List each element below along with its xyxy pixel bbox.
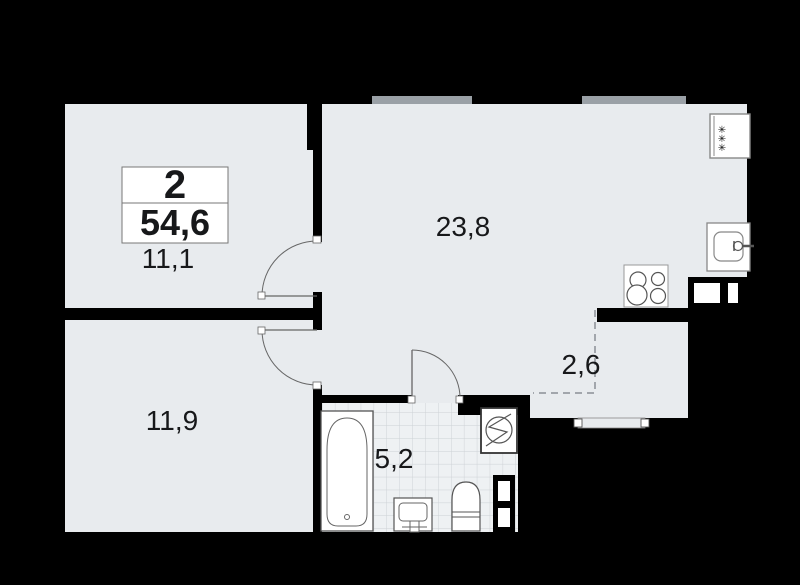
area-label-storage-niche: 2,6 [562,349,601,380]
vent-icon: ✳ ✳ ✳ [710,114,750,158]
washing-machine-icon [481,408,517,453]
vent-glyph: ✳ [718,143,726,154]
door-marker [258,292,265,299]
total-area-label: 54,6 [140,202,210,243]
area-label-bathroom: 5,2 [375,443,414,474]
area-label-bedroom-bottom: 11,9 [146,405,198,436]
duct-slot-large [694,283,720,303]
balcony-door-window [574,418,649,428]
door-marker [258,327,265,334]
floor-plan: ✳ ✳ ✳ 2 54,6 11,1 23,8 11,9 2,6 5,2 [0,0,800,585]
wall-bottom [57,532,530,540]
bay-window-sash [578,418,645,428]
duct-kitchen-icon [694,283,738,303]
window-top-right [582,96,686,104]
stove-icon [624,265,668,307]
unit-info-box: 2 54,6 [122,163,228,243]
area-label-bedroom-top: 11,1 [142,243,194,274]
wall-hall-vertical-thin [313,150,322,242]
door-marker [408,396,415,403]
wall-bathroom-top [321,395,412,403]
door-marker [313,236,321,243]
room-count-label: 2 [164,163,186,207]
wall-niche-top [597,308,695,322]
door-marker [456,396,463,403]
kitchen-sink-icon [707,223,754,271]
wall-door-stub-2 [313,320,322,330]
wall-hall-vertical-thick [307,104,322,150]
duct-shaft-icon [493,475,515,533]
area-label-living-kitchen: 23,8 [436,211,491,242]
bath-sink-icon [394,498,432,532]
wall-door-stub-1 [313,292,322,308]
wall-bathroom-right [518,395,530,540]
wall-niche-right [688,313,695,430]
duct-slot-small [728,283,738,303]
bay-window-frame-left [574,419,582,427]
wall-mid-horizontal [57,308,322,320]
floor-plan-canvas: ✳ ✳ ✳ 2 54,6 11,1 23,8 11,9 2,6 5,2 [0,0,800,585]
bay-window-frame-right [641,419,649,427]
window-top-left [372,96,472,104]
bathtub-icon [321,411,373,531]
toilet-icon [452,482,480,531]
door-marker [313,382,321,389]
